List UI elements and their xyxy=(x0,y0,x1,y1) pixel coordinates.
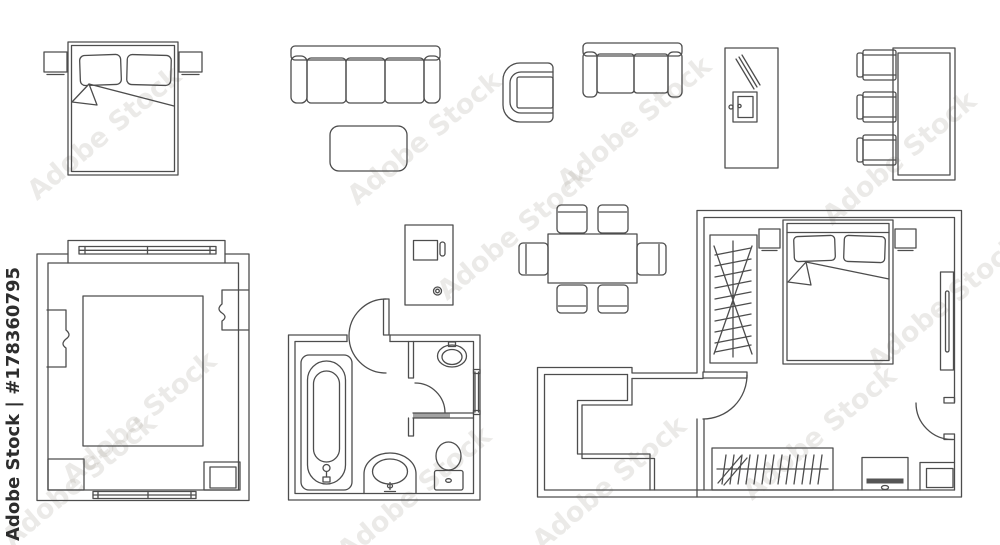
watermark-text: Adobe Stock xyxy=(862,230,1000,377)
corner-sink xyxy=(438,342,467,367)
tv-unit xyxy=(862,458,908,491)
pillow xyxy=(844,235,886,262)
window xyxy=(93,492,196,499)
chair xyxy=(857,50,896,80)
pillow xyxy=(79,54,121,85)
corner-unit xyxy=(204,462,240,490)
door xyxy=(916,398,955,440)
watermark-text: Adobe Stock xyxy=(0,407,163,545)
bathroom-plan xyxy=(289,299,481,500)
door xyxy=(349,299,389,373)
three-seat-sofa-symbol xyxy=(291,46,440,103)
wardrobe xyxy=(710,235,757,363)
chair xyxy=(519,243,548,275)
chair xyxy=(637,243,666,275)
watermark-text: Adobe Stock xyxy=(527,410,694,545)
watermark-text: Adobe Stock xyxy=(817,85,984,232)
tall-cabinet-symbol xyxy=(725,48,778,168)
side-unit xyxy=(219,290,248,330)
watermark-text: Adobe Stock xyxy=(737,360,904,507)
watermark-text: Adobe Stock xyxy=(22,60,189,207)
window xyxy=(79,247,216,255)
side-unit xyxy=(47,310,69,367)
watermark-credit: Adobe Stock | #178360795 xyxy=(3,267,24,541)
door xyxy=(703,372,747,419)
nightstand xyxy=(759,229,780,251)
chair xyxy=(598,205,628,233)
blanket-fold xyxy=(72,84,97,105)
armchair-symbol xyxy=(503,63,553,122)
bathtub xyxy=(301,355,352,490)
chair xyxy=(598,285,628,313)
watermark-pattern: Adobe Stock Adobe Stock Adobe Stock Adob… xyxy=(0,50,1000,545)
line-drawing: Adobe Stock Adobe Stock Adobe Stock Adob… xyxy=(0,0,1000,545)
chair xyxy=(557,285,587,313)
window xyxy=(474,370,481,415)
corner-closet xyxy=(920,463,955,491)
pillow xyxy=(794,235,836,261)
chair xyxy=(857,92,896,122)
floorplan-symbol-sheet: Adobe Stock Adobe Stock Adobe Stock Adob… xyxy=(0,0,1000,545)
watermark-text: Adobe Stock xyxy=(342,65,509,212)
nightstand xyxy=(895,229,916,251)
blanket-fold xyxy=(788,262,811,285)
